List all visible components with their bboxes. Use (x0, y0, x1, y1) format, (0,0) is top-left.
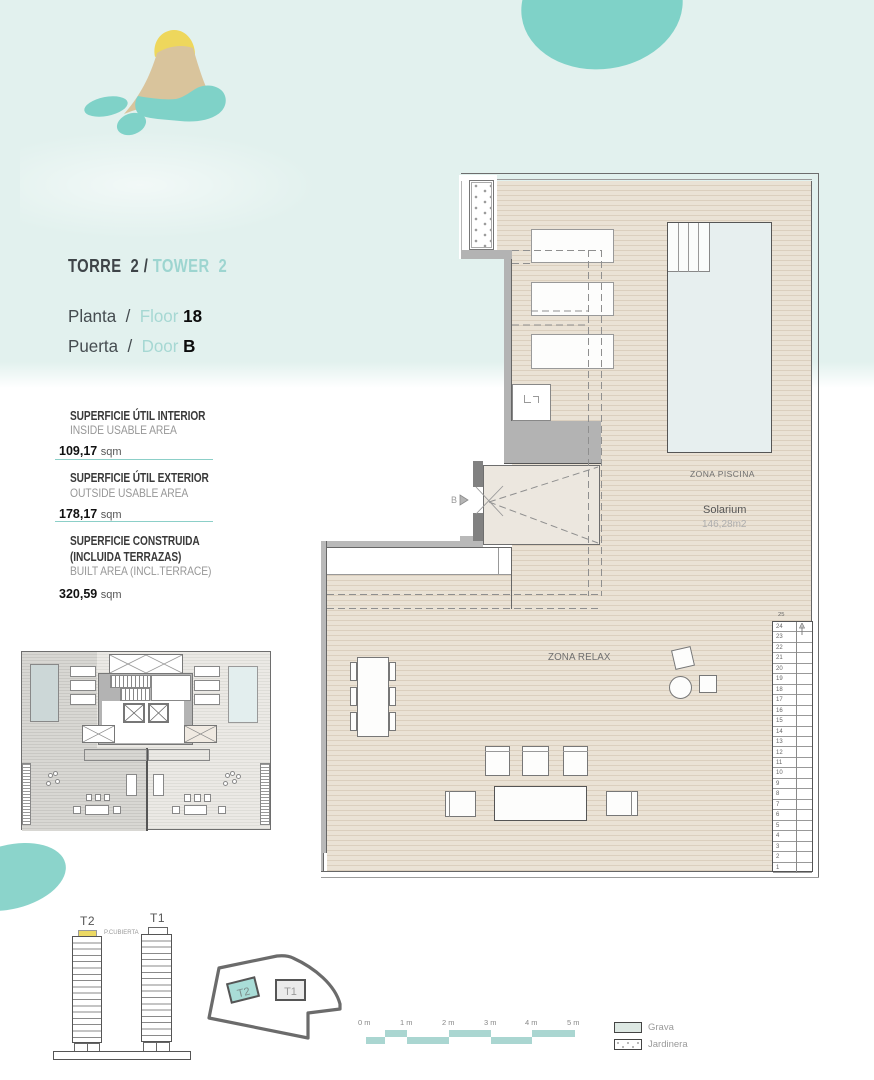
svg-text:T1: T1 (284, 986, 297, 998)
